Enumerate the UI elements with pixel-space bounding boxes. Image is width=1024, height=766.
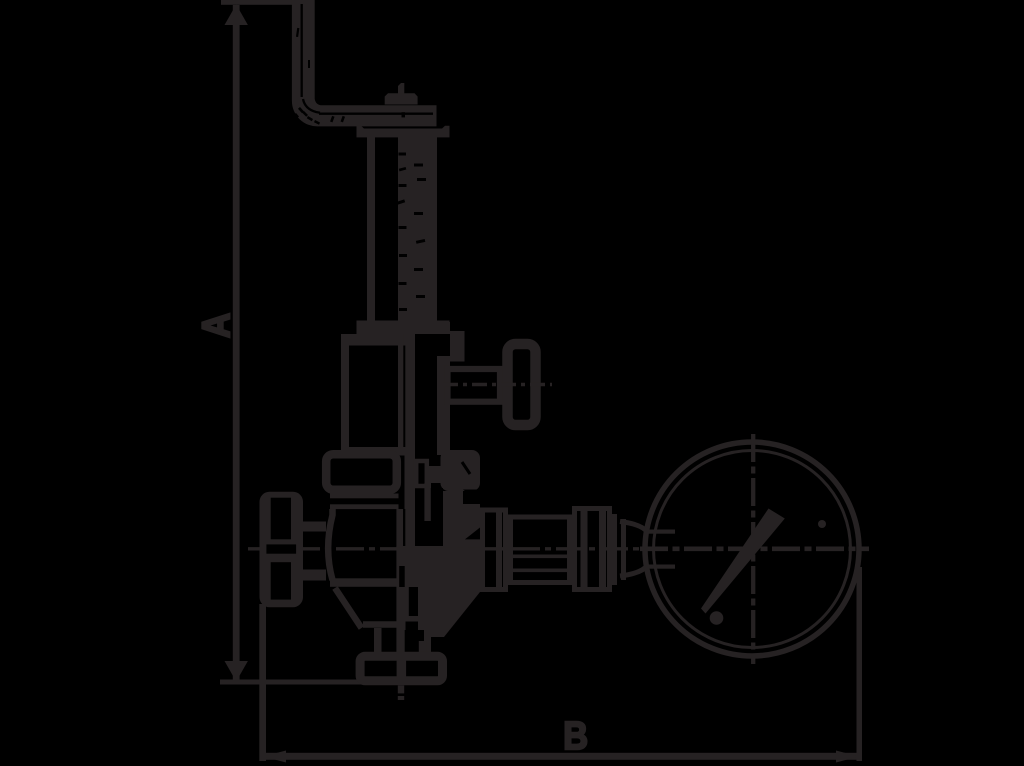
svg-text:A: A — [195, 313, 238, 338]
svg-text:B: B — [563, 714, 588, 758]
